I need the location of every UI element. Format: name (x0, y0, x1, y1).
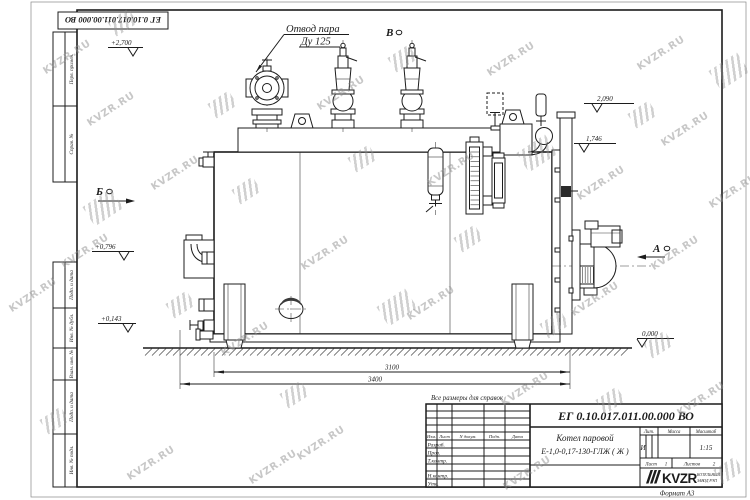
scale-label: Масштаб (695, 430, 717, 435)
margin-fields: Перв. примен. Справ. № Подп. и дата Инв.… (53, 32, 77, 487)
field-vzam-inv: Взам. инв. № (69, 350, 75, 379)
field-sprav-no: Справ. № (69, 133, 75, 154)
steam-outlet-valve (246, 58, 288, 132)
title-block: ЕГ 0.10.017.011.00.000 ВО Котел паровой … (426, 404, 722, 498)
boiler-general-view-drawing: ЕГ 0.10.017.011.00.000 ВО Перв. примен. … (0, 0, 750, 500)
lifting-lug-2 (502, 110, 524, 124)
elevation-1746: 1,746 (586, 135, 602, 143)
company-name: KVZR (662, 471, 698, 486)
sheet-value: 1 (665, 463, 668, 468)
corner-stamp-number: ЕГ 0.10.017.011.00.000 ВО (65, 15, 162, 25)
elevation-0796: +0,796 (95, 243, 116, 251)
svg-text:3100: 3100 (384, 364, 400, 372)
callout-steam-outlet: Отвод пара Ду 125 (256, 24, 349, 72)
svg-text:Б: Б (95, 186, 103, 198)
field-podp-data-1: Подп. и дата (68, 270, 75, 301)
lit-label: Лит. (643, 430, 654, 435)
col-list: Лист (438, 434, 450, 439)
left-nozzles (184, 152, 214, 340)
water-level-gauge-2 (492, 153, 505, 208)
sheet-label: Лист (644, 463, 657, 468)
hidden-component (487, 93, 503, 115)
dimension-3100: 3100 (214, 350, 570, 389)
row-tkontr: Т.контр. (428, 459, 448, 465)
format-label: Формат А3 (660, 490, 695, 498)
safety-valve-1 (331, 40, 357, 132)
lifting-lug-1 (291, 114, 313, 128)
product-name: Котел паровой (555, 433, 614, 443)
field-podp-data-2: Подп. и дата (68, 392, 75, 423)
row-prov: Пров. (427, 451, 441, 457)
col-data: Дата (511, 434, 524, 439)
base-rail (210, 334, 560, 342)
lit-value: И (639, 444, 646, 452)
support-leg-2 (512, 284, 533, 348)
ground-line (143, 348, 632, 356)
row-razrab: Разраб. (427, 442, 445, 449)
elevation-2090: 2,090 (597, 95, 613, 103)
field-perv-primen: Перв. примен. (69, 54, 75, 86)
col-izm: Изм. (426, 434, 436, 439)
rear-flue-channel (552, 112, 578, 334)
view-label-b: Б (95, 186, 135, 204)
elevation-0000: 0,000 (642, 330, 658, 338)
view-label-v: В (385, 27, 402, 39)
support-leg-1 (224, 284, 245, 348)
col-ndoc: N докум. (459, 434, 477, 439)
scale-value: 1:15 (700, 444, 713, 452)
mass-label: Масса (667, 430, 681, 435)
corner-stamp: ЕГ 0.10.017.011.00.000 ВО (58, 12, 168, 29)
reference-note: Все размеры для справок (431, 395, 504, 402)
col-podp: Подп. (488, 434, 500, 439)
sheets-label: Листов (683, 463, 701, 468)
product-type: Е-1,0-0,17-130-ГЛЖ ( Ж ) (540, 447, 629, 456)
field-inv-dubl: Инв. № дубл. (68, 314, 75, 343)
rear-top-box (500, 124, 532, 155)
elevation-0143: +0,143 (101, 315, 122, 323)
company-sub2: ЗАВОД РЭП (697, 479, 717, 483)
safety-valve-2 (400, 40, 426, 132)
svg-text:А: А (652, 243, 660, 255)
elevation-2700: +2,700 (111, 39, 132, 47)
row-utv: Утв. (428, 482, 439, 488)
callout-line2: Ду 125 (300, 37, 331, 48)
svg-text:3400: 3400 (367, 376, 383, 384)
drawing-sheet: ЕГ 0.10.017.011.00.000 ВО Перв. примен. … (0, 0, 750, 500)
field-inv-podl: Инв. № подл. (68, 446, 75, 476)
view-label-a: А (637, 243, 670, 260)
doc-number: ЕГ 0.10.017.011.00.000 ВО (557, 409, 694, 423)
row-nkontr: Н.контр. (427, 474, 449, 480)
callout-line1: Отвод пара (286, 24, 340, 35)
top-casing-band (238, 128, 500, 152)
svg-text:В: В (385, 27, 393, 39)
